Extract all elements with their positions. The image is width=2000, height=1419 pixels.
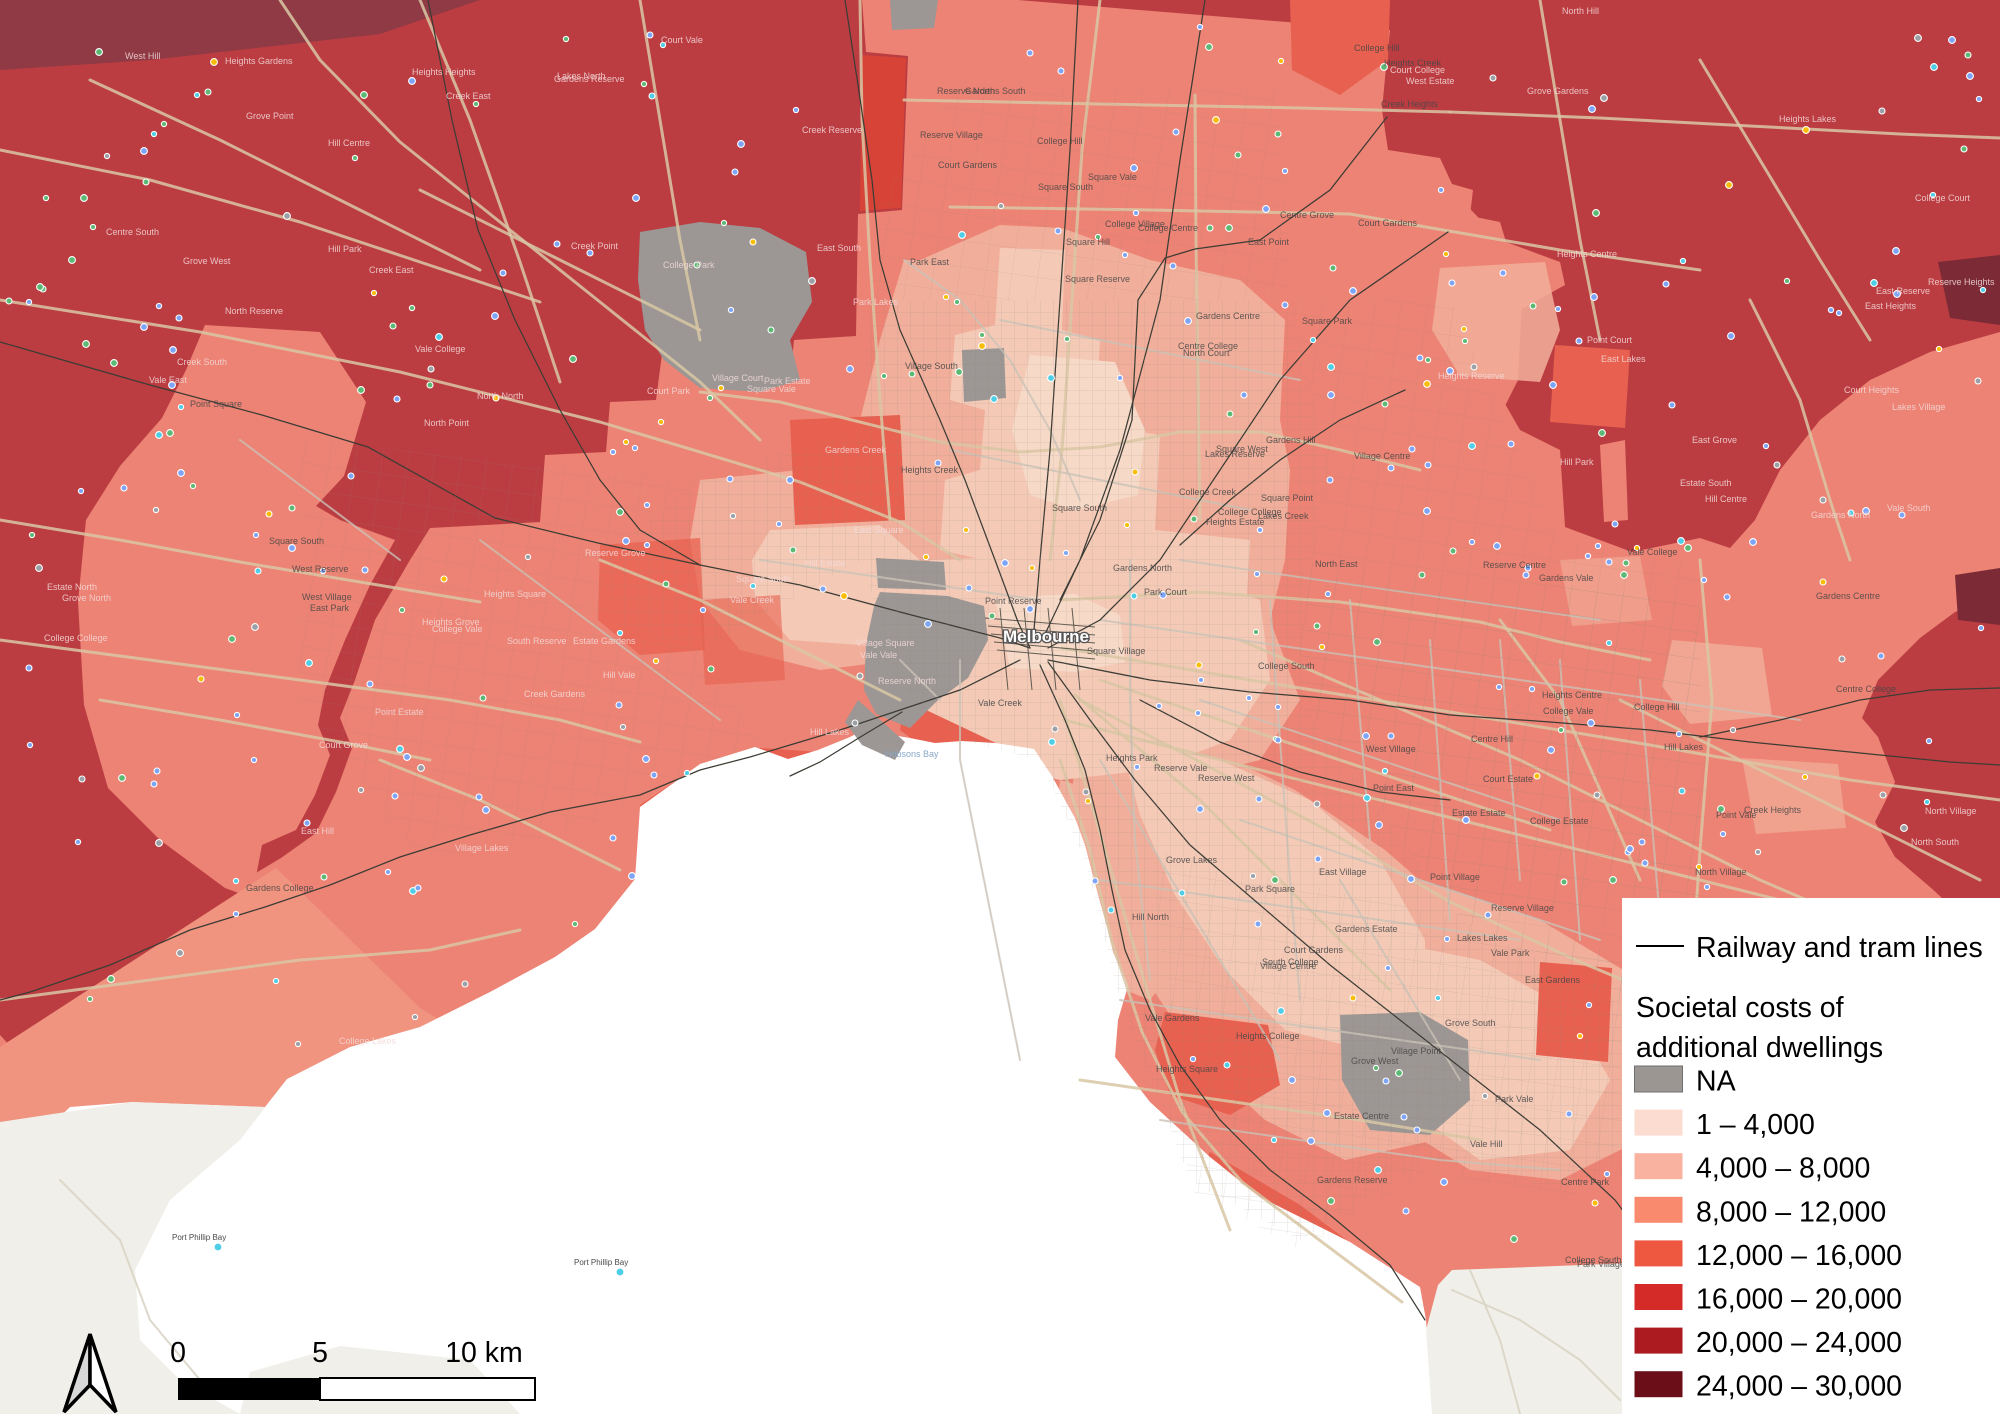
svg-text:Reserve Village: Reserve Village <box>1491 903 1554 913</box>
svg-text:Hill Estate: Hill Estate <box>805 558 846 568</box>
svg-text:Point Reserve: Point Reserve <box>985 596 1042 606</box>
svg-text:East Square: East Square <box>854 525 904 535</box>
svg-text:East Park: East Park <box>310 603 350 613</box>
svg-text:Societal costs of: Societal costs of <box>1636 992 1844 1024</box>
svg-text:College Estate: College Estate <box>1530 816 1589 826</box>
svg-text:Lakes Lakes: Lakes Lakes <box>1457 933 1508 943</box>
svg-text:Creek Heights: Creek Heights <box>1744 805 1802 815</box>
svg-text:Heights Creek: Heights Creek <box>1384 58 1442 68</box>
svg-text:Reserve Vale: Reserve Vale <box>1154 763 1207 773</box>
svg-text:Gardens North: Gardens North <box>1113 563 1172 573</box>
svg-text:Creek Heights: Creek Heights <box>1381 99 1439 109</box>
svg-text:Gardens South: Gardens South <box>965 86 1026 96</box>
svg-text:Creek East: Creek East <box>446 91 491 101</box>
svg-text:East South: East South <box>817 243 861 253</box>
svg-text:Gardens Vale: Gardens Vale <box>1539 573 1593 583</box>
svg-text:College Vale: College Vale <box>1543 706 1593 716</box>
svg-text:5: 5 <box>312 1337 328 1369</box>
svg-text:12,000 – 16,000: 12,000 – 16,000 <box>1696 1240 1902 1272</box>
svg-text:Court Estate: Court Estate <box>1483 774 1533 784</box>
svg-text:Vale Park: Vale Park <box>1491 948 1530 958</box>
svg-text:North North: North North <box>477 391 524 401</box>
svg-text:Grove Lakes: Grove Lakes <box>1166 855 1218 865</box>
svg-text:Heights Lakes: Heights Lakes <box>1779 114 1837 124</box>
svg-text:West Village: West Village <box>302 592 352 602</box>
svg-text:Heights Estate: Heights Estate <box>1206 517 1265 527</box>
svg-text:Square South: Square South <box>269 536 324 546</box>
svg-text:Hill Centre: Hill Centre <box>328 138 370 148</box>
svg-text:Centre South: Centre South <box>106 227 159 237</box>
svg-text:Square South: Square South <box>736 574 791 584</box>
svg-text:East Grove: East Grove <box>1692 435 1737 445</box>
svg-text:Estate North: Estate North <box>47 582 97 592</box>
svg-text:Reserve North: Reserve North <box>878 676 936 686</box>
svg-text:North East: North East <box>1315 559 1358 569</box>
svg-text:Port Phillip Bay: Port Phillip Bay <box>574 1258 628 1267</box>
svg-text:Vale College: Vale College <box>415 344 465 354</box>
svg-text:Grove North: Grove North <box>62 593 111 603</box>
svg-text:Centre College: Centre College <box>1836 684 1896 694</box>
svg-text:Estate South: Estate South <box>1680 478 1732 488</box>
svg-text:8,000 – 12,000: 8,000 – 12,000 <box>1696 1196 1886 1228</box>
svg-text:Gardens North: Gardens North <box>1811 510 1870 520</box>
svg-text:Square Hill: Square Hill <box>1066 237 1110 247</box>
svg-text:Vale Vale: Vale Vale <box>860 650 897 660</box>
svg-text:Park East: Park East <box>910 257 950 267</box>
svg-text:Point Village: Point Village <box>1430 872 1480 882</box>
svg-text:Gardens Estate: Gardens Estate <box>1335 924 1398 934</box>
svg-text:College Hill: College Hill <box>1354 43 1400 53</box>
svg-text:East Lakes: East Lakes <box>1601 354 1646 364</box>
svg-text:Vale East: Vale East <box>149 375 187 385</box>
svg-text:Gardens Centre: Gardens Centre <box>1196 311 1260 321</box>
svg-text:Square South: Square South <box>1038 182 1093 192</box>
svg-text:Heights Reserve: Heights Reserve <box>1438 371 1505 381</box>
svg-text:Hill Vale: Hill Vale <box>603 670 635 680</box>
svg-text:Heights Grove: Heights Grove <box>422 617 480 627</box>
svg-text:College South: College South <box>1258 661 1315 671</box>
svg-text:North Village: North Village <box>1695 867 1746 877</box>
svg-text:20,000 – 24,000: 20,000 – 24,000 <box>1696 1327 1902 1359</box>
svg-text:10 km: 10 km <box>445 1337 523 1369</box>
svg-text:Court Vale: Court Vale <box>661 35 703 45</box>
svg-text:Gardens College: Gardens College <box>246 883 314 893</box>
svg-text:Lakes Creek: Lakes Creek <box>1258 511 1309 521</box>
svg-text:Square Park: Square Park <box>1302 316 1353 326</box>
svg-text:East Hill: East Hill <box>301 826 334 836</box>
svg-text:Vale Creek: Vale Creek <box>978 698 1022 708</box>
svg-text:College College: College College <box>44 633 108 643</box>
svg-text:Hill North: Hill North <box>1132 912 1169 922</box>
svg-text:College Court: College Court <box>1915 193 1971 203</box>
svg-text:Hill Lakes: Hill Lakes <box>1664 742 1704 752</box>
svg-text:North Point: North Point <box>424 418 470 428</box>
svg-text:Reserve West: Reserve West <box>1198 773 1255 783</box>
svg-text:Grove Point: Grove Point <box>246 111 294 121</box>
svg-text:Park Court: Park Court <box>1144 587 1188 597</box>
svg-text:NA: NA <box>1696 1066 1736 1098</box>
svg-text:Lakes Village: Lakes Village <box>1892 402 1945 412</box>
svg-text:West Estate: West Estate <box>1406 76 1454 86</box>
svg-text:Square Vale: Square Vale <box>1088 172 1137 182</box>
svg-text:Hill Park: Hill Park <box>328 244 362 254</box>
svg-text:College Lakes: College Lakes <box>339 1036 397 1046</box>
svg-text:24,000 – 30,000: 24,000 – 30,000 <box>1696 1371 1902 1403</box>
svg-text:North Reserve: North Reserve <box>225 306 283 316</box>
svg-text:Point East: Point East <box>1373 783 1415 793</box>
svg-text:College Village: College Village <box>1105 219 1165 229</box>
svg-text:Reserve Heights: Reserve Heights <box>1928 277 1995 287</box>
svg-text:Hobsons Bay: Hobsons Bay <box>885 749 939 759</box>
svg-text:Centre Park: Centre Park <box>1561 1177 1610 1187</box>
svg-text:West Reserve: West Reserve <box>292 564 348 574</box>
svg-text:South College: South College <box>1262 957 1319 967</box>
svg-text:East Point: East Point <box>1248 237 1290 247</box>
svg-text:Estate Estate: Estate Estate <box>1452 808 1506 818</box>
svg-text:Park Lakes: Park Lakes <box>853 297 899 307</box>
svg-text:Village Centre: Village Centre <box>1354 451 1410 461</box>
svg-text:Vale South: Vale South <box>1887 503 1930 513</box>
svg-text:Reserve Grove: Reserve Grove <box>585 548 646 558</box>
svg-text:Heights College: Heights College <box>1236 1031 1300 1041</box>
svg-text:College Hill: College Hill <box>1634 702 1680 712</box>
svg-text:West Village: West Village <box>1366 744 1416 754</box>
svg-text:Estate Gardens: Estate Gardens <box>573 636 636 646</box>
svg-text:East Heights: East Heights <box>1865 301 1917 311</box>
svg-text:Heights Creek: Heights Creek <box>901 465 959 475</box>
svg-text:Heights Centre: Heights Centre <box>1542 690 1602 700</box>
svg-text:East Gardens: East Gardens <box>1525 975 1581 985</box>
svg-text:Point Square: Point Square <box>190 399 242 409</box>
svg-text:0: 0 <box>170 1337 186 1369</box>
svg-text:East Reserve: East Reserve <box>1876 286 1930 296</box>
svg-text:Reserve Village: Reserve Village <box>920 130 983 140</box>
svg-text:Lakes North: Lakes North <box>557 71 606 81</box>
svg-text:Point Estate: Point Estate <box>375 707 424 717</box>
svg-text:Village South: Village South <box>905 361 958 371</box>
svg-text:Hill Centre: Hill Centre <box>1705 494 1747 504</box>
svg-text:Square Point: Square Point <box>1261 493 1314 503</box>
svg-text:Estate Centre: Estate Centre <box>1334 1111 1389 1121</box>
svg-text:Vale Creek: Vale Creek <box>730 595 774 605</box>
svg-text:Creek South: Creek South <box>177 357 227 367</box>
svg-text:Grove West: Grove West <box>1351 1056 1399 1066</box>
svg-text:College Park: College Park <box>663 260 715 270</box>
svg-text:Port Phillip Bay: Port Phillip Bay <box>172 1233 226 1242</box>
svg-text:Heights Park: Heights Park <box>1106 753 1158 763</box>
svg-text:Heights Gardens: Heights Gardens <box>225 56 293 66</box>
svg-text:Court Gardens: Court Gardens <box>938 160 998 170</box>
svg-text:16,000 – 20,000: 16,000 – 20,000 <box>1696 1284 1902 1316</box>
svg-text:additional dwellings: additional dwellings <box>1636 1032 1883 1064</box>
svg-text:Centre Grove: Centre Grove <box>1280 210 1334 220</box>
svg-text:Grove South: Grove South <box>1445 1018 1496 1028</box>
svg-text:Creek Point: Creek Point <box>571 241 619 251</box>
svg-text:Court Gardens: Court Gardens <box>1358 218 1418 228</box>
svg-text:Point Court: Point Court <box>1587 335 1633 345</box>
svg-text:Heights Centre: Heights Centre <box>1557 249 1617 259</box>
svg-text:Grove Gardens: Grove Gardens <box>1527 86 1589 96</box>
svg-text:Square Reserve: Square Reserve <box>1065 274 1130 284</box>
svg-text:Village Court: Village Court <box>712 373 764 383</box>
svg-text:Vale Gardens: Vale Gardens <box>1145 1013 1200 1023</box>
svg-text:Creek Reserve: Creek Reserve <box>802 125 862 135</box>
svg-text:South Reserve: South Reserve <box>507 636 567 646</box>
svg-text:Village Lakes: Village Lakes <box>455 843 509 853</box>
svg-text:North Hill: North Hill <box>1562 6 1599 16</box>
svg-text:Creek East: Creek East <box>369 265 414 275</box>
svg-text:Gardens Hill: Gardens Hill <box>1266 435 1316 445</box>
svg-text:North Village: North Village <box>1925 806 1976 816</box>
svg-text:Gardens Reserve: Gardens Reserve <box>1317 1175 1388 1185</box>
svg-text:College Hill: College Hill <box>1037 136 1083 146</box>
svg-text:West Hill: West Hill <box>125 51 160 61</box>
svg-text:Centre Hill: Centre Hill <box>1471 734 1513 744</box>
svg-text:College Creek: College Creek <box>1179 487 1237 497</box>
svg-text:Vale Hill: Vale Hill <box>1470 1139 1502 1149</box>
svg-text:Grove West: Grove West <box>183 256 231 266</box>
svg-text:Park Vale: Park Vale <box>1495 1094 1533 1104</box>
svg-text:Village Square: Village Square <box>856 638 914 648</box>
svg-text:North Court: North Court <box>1183 348 1230 358</box>
svg-text:4,000 – 8,000: 4,000 – 8,000 <box>1696 1153 1870 1185</box>
svg-text:Heights Heights: Heights Heights <box>412 67 476 77</box>
svg-text:North South: North South <box>1911 837 1959 847</box>
svg-text:Square Village: Square Village <box>1087 646 1145 656</box>
svg-text:College South: College South <box>1565 1255 1622 1265</box>
svg-text:Square South: Square South <box>1052 503 1107 513</box>
svg-text:Reserve Centre: Reserve Centre <box>1483 560 1546 570</box>
svg-text:East Village: East Village <box>1319 867 1366 877</box>
svg-text:Court Heights: Court Heights <box>1844 385 1900 395</box>
svg-text:Lakes Reserve: Lakes Reserve <box>1205 449 1265 459</box>
svg-text:Creek Gardens: Creek Gardens <box>524 689 586 699</box>
svg-text:1 – 4,000: 1 – 4,000 <box>1696 1109 1815 1141</box>
svg-text:Park Estate: Park Estate <box>764 376 811 386</box>
svg-text:Vale College: Vale College <box>1627 547 1677 557</box>
svg-text:Village Point: Village Point <box>1391 1046 1441 1056</box>
svg-text:Court Gardens: Court Gardens <box>1284 945 1344 955</box>
svg-text:Melbourne: Melbourne <box>1003 627 1089 646</box>
svg-text:Park Square: Park Square <box>1245 884 1295 894</box>
svg-text:Gardens Creek: Gardens Creek <box>825 445 887 455</box>
svg-text:Hill Park: Hill Park <box>1560 457 1594 467</box>
svg-text:Court Grove: Court Grove <box>319 740 368 750</box>
svg-text:Hill Lakes: Hill Lakes <box>810 727 850 737</box>
svg-text:Court Park: Court Park <box>647 386 691 396</box>
svg-text:Gardens Centre: Gardens Centre <box>1816 591 1880 601</box>
svg-text:Heights Square: Heights Square <box>1156 1064 1218 1074</box>
svg-text:Heights Square: Heights Square <box>484 589 546 599</box>
svg-text:Railway and tram lines: Railway and tram lines <box>1696 932 1983 964</box>
